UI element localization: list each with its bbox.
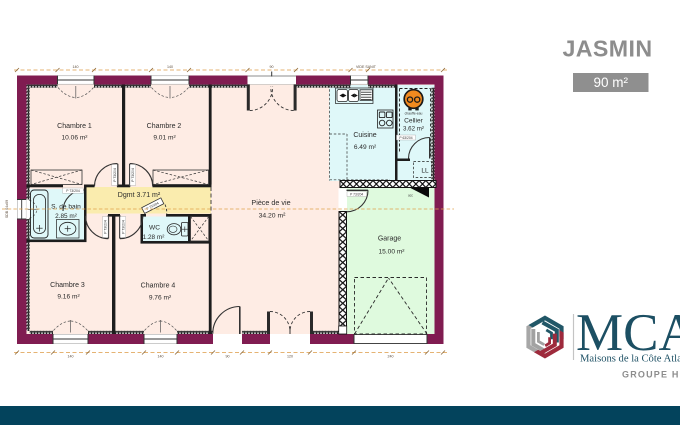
svg-text:P 73/204: P 73/204 <box>131 168 135 182</box>
svg-text:140: 140 <box>68 355 74 359</box>
svg-text:Maisons de la Côte Atlantique: Maisons de la Côte Atlantique <box>580 354 680 365</box>
svg-text:LL: LL <box>421 168 429 175</box>
svg-text:Chambre 4: Chambre 4 <box>141 283 176 290</box>
svg-text:acc: acc <box>408 194 413 198</box>
svg-text:P 63/204: P 63/204 <box>399 136 412 140</box>
svg-text:240: 240 <box>388 355 394 359</box>
svg-text:6.49 m²: 6.49 m² <box>354 144 377 151</box>
svg-text:WC: WC <box>149 225 160 232</box>
svg-text:90: 90 <box>226 355 230 359</box>
svg-text:90 m²: 90 m² <box>593 75 628 90</box>
svg-text:GROUPE HEXAOM: GROUPE HEXAOM <box>622 370 680 380</box>
svg-text:15.00 m²: 15.00 m² <box>378 249 405 256</box>
svg-text:3.62 m²: 3.62 m² <box>403 126 424 133</box>
svg-text:Cellier: Cellier <box>404 118 423 125</box>
svg-text:VIDE SANIT: VIDE SANIT <box>356 65 377 69</box>
svg-text:S. de bain: S. de bain <box>51 204 81 211</box>
svg-text:Chambre 1: Chambre 1 <box>57 123 92 130</box>
svg-text:P 73/204: P 73/204 <box>113 168 117 182</box>
svg-text:9.01 m²: 9.01 m² <box>153 135 176 142</box>
svg-text:2.85 m²: 2.85 m² <box>55 213 77 220</box>
svg-text:90: 90 <box>270 65 274 69</box>
svg-text:9.16 m²: 9.16 m² <box>57 294 80 301</box>
svg-text:9.76 m²: 9.76 m² <box>149 295 172 302</box>
svg-text:140: 140 <box>167 65 173 69</box>
svg-text:Chambre 3: Chambre 3 <box>50 282 85 289</box>
svg-text:P 73/204: P 73/204 <box>104 220 108 234</box>
svg-text:Cuisine: Cuisine <box>353 132 376 139</box>
svg-text:Chambre 2: Chambre 2 <box>147 123 182 130</box>
svg-text:P 73/204: P 73/204 <box>66 189 80 193</box>
svg-text:P 73/204: P 73/204 <box>350 193 363 197</box>
svg-text:JASMIN: JASMIN <box>562 36 652 62</box>
svg-text:140: 140 <box>73 65 79 69</box>
svg-text:120: 120 <box>287 355 293 359</box>
svg-text:1.28 m²: 1.28 m² <box>143 234 165 241</box>
svg-text:chauffe-eau: chauffe-eau <box>405 112 423 116</box>
svg-text:Dgmt 3.71 m²: Dgmt 3.71 m² <box>118 192 161 199</box>
svg-text:Pièce de vie: Pièce de vie <box>251 198 290 207</box>
svg-text:Garage: Garage <box>378 236 401 243</box>
svg-text:P 73/204: P 73/204 <box>121 220 125 234</box>
svg-text:SDB 04x09: SDB 04x09 <box>5 200 9 218</box>
svg-text:140: 140 <box>158 355 164 359</box>
svg-text:34.20 m²: 34.20 m² <box>259 213 287 220</box>
svg-text:10.06 m²: 10.06 m² <box>61 135 88 142</box>
